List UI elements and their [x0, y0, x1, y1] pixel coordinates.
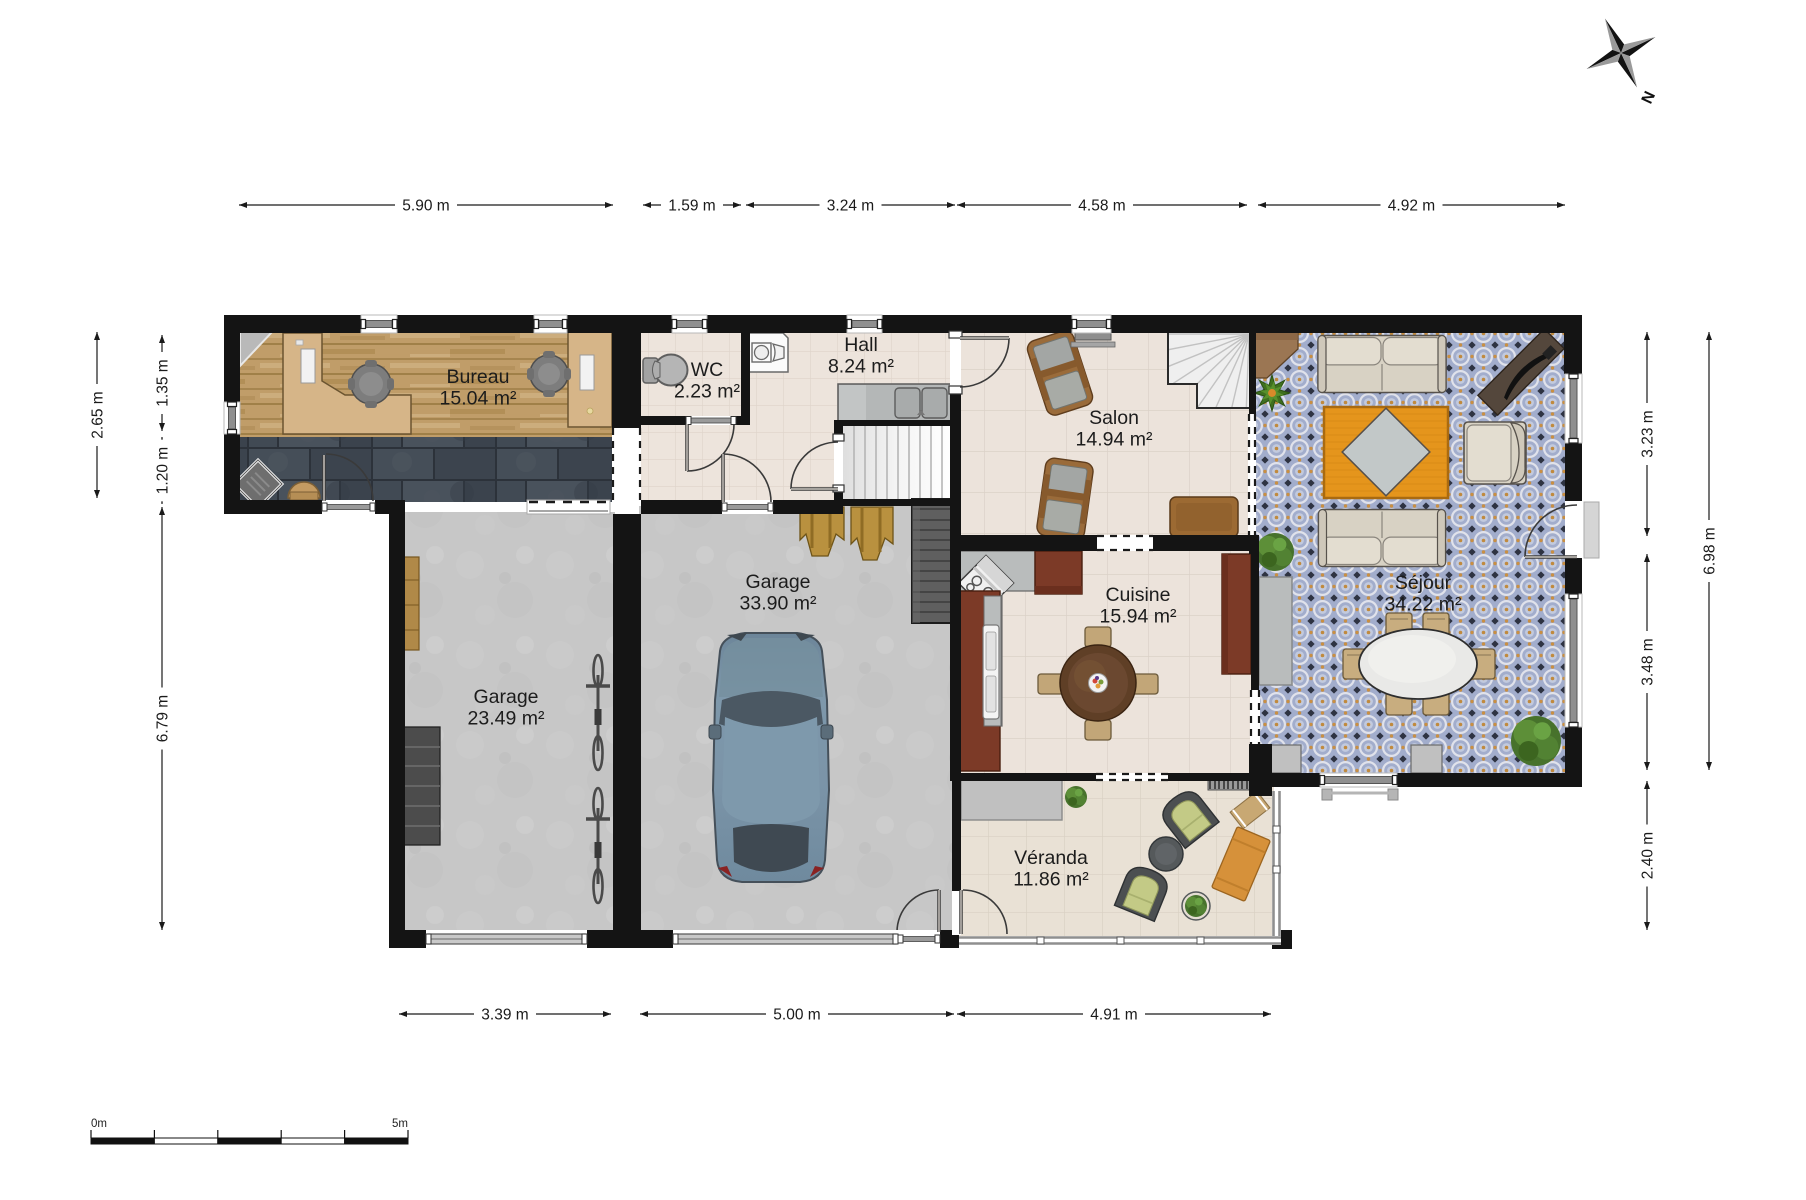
svg-text:Cuisine: Cuisine	[1105, 584, 1170, 606]
svg-text:8.24 m²: 8.24 m²	[828, 356, 895, 378]
svg-text:15.04 m²: 15.04 m²	[440, 388, 517, 410]
svg-text:14.94 m²: 14.94 m²	[1076, 429, 1153, 451]
svg-text:23.49 m²: 23.49 m²	[468, 708, 545, 730]
svg-text:3.48 m: 3.48 m	[1640, 638, 1657, 685]
svg-text:Salon: Salon	[1089, 407, 1139, 429]
svg-text:Véranda: Véranda	[1014, 847, 1088, 869]
svg-text:Hall: Hall	[844, 334, 878, 356]
svg-text:Garage: Garage	[473, 686, 538, 708]
svg-text:WC: WC	[691, 359, 724, 381]
svg-text:6.98 m: 6.98 m	[1702, 527, 1719, 574]
svg-text:3.24 m: 3.24 m	[827, 198, 874, 215]
svg-text:2.40 m: 2.40 m	[1640, 832, 1657, 879]
svg-text:33.90 m²: 33.90 m²	[740, 593, 817, 615]
svg-text:6.79 m: 6.79 m	[155, 695, 172, 742]
svg-text:4.91 m: 4.91 m	[1090, 1007, 1137, 1024]
svg-text:1.35 m: 1.35 m	[155, 359, 172, 406]
svg-text:2.23 m²: 2.23 m²	[674, 381, 741, 403]
svg-text:4.92 m: 4.92 m	[1388, 198, 1435, 215]
svg-text:11.86 m²: 11.86 m²	[1013, 869, 1089, 891]
svg-text:1.59 m: 1.59 m	[668, 198, 715, 215]
svg-text:3.23 m: 3.23 m	[1640, 410, 1657, 457]
svg-text:3.39 m: 3.39 m	[481, 1007, 528, 1024]
svg-text:5.00 m: 5.00 m	[773, 1007, 820, 1024]
svg-text:1.20 m: 1.20 m	[155, 447, 172, 494]
svg-text:Garage: Garage	[745, 571, 810, 593]
svg-text:Séjour: Séjour	[1395, 572, 1452, 594]
svg-text:5.90 m: 5.90 m	[402, 198, 449, 215]
svg-text:34.22 m²: 34.22 m²	[1385, 594, 1462, 616]
svg-text:15.94 m²: 15.94 m²	[1100, 606, 1177, 628]
svg-text:Bureau: Bureau	[447, 366, 510, 388]
svg-text:2.65 m: 2.65 m	[90, 391, 107, 438]
svg-text:0m: 0m	[91, 1118, 107, 1130]
svg-text:4.58 m: 4.58 m	[1078, 198, 1125, 215]
svg-text:5m: 5m	[392, 1118, 408, 1130]
